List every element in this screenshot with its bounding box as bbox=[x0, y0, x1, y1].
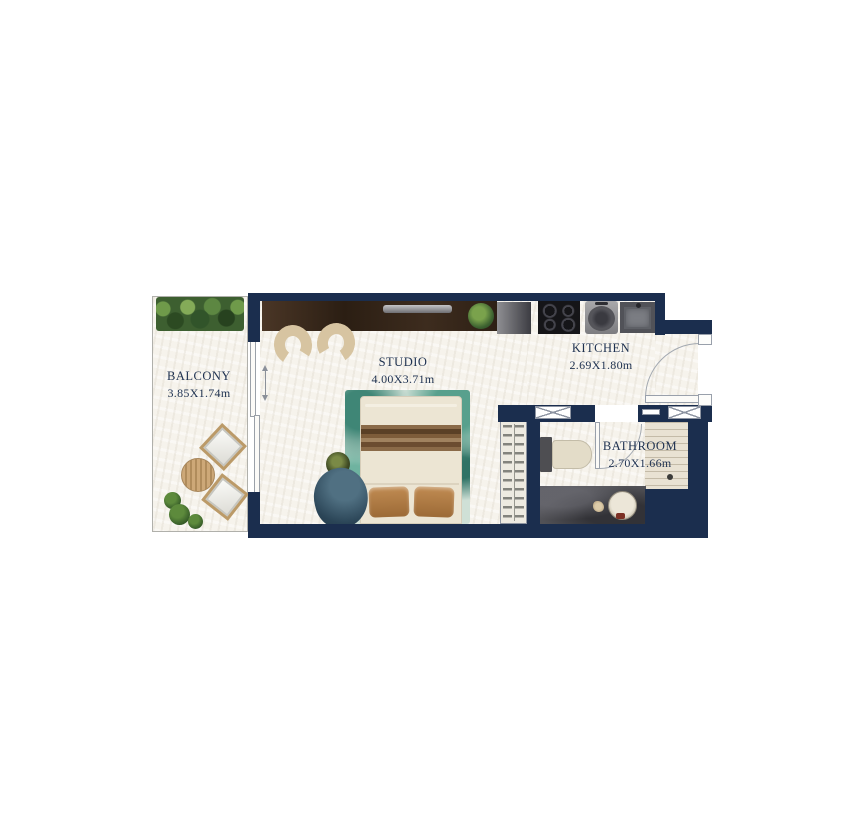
wall-bottom bbox=[248, 524, 708, 538]
cooktop-icon bbox=[538, 301, 580, 334]
hangers-right bbox=[515, 425, 524, 520]
bush-icon bbox=[188, 514, 203, 529]
room-name: BALCONY bbox=[167, 368, 231, 385]
room-dimensions: 4.00X3.71m bbox=[372, 371, 435, 388]
toilet-icon bbox=[552, 440, 592, 469]
wall-vent-symbol-icon bbox=[535, 406, 571, 419]
wall-entry-top bbox=[655, 320, 712, 334]
balcony-label: BALCONY 3.85X1.74m bbox=[167, 368, 231, 402]
fridge-icon bbox=[497, 302, 531, 334]
hangers-left bbox=[503, 425, 512, 520]
plant-icon bbox=[468, 303, 494, 329]
entrance-door-leaf bbox=[645, 395, 702, 403]
wall-vent-symbol-icon bbox=[668, 406, 701, 419]
wardrobe-rail bbox=[514, 424, 515, 521]
room-dimensions: 2.70X1.66m bbox=[603, 455, 677, 472]
bed-duvet-edge bbox=[363, 483, 459, 485]
wall-corner-bottom-right bbox=[645, 489, 708, 524]
bathroom-label: BATHROOM 2.70X1.66m bbox=[603, 438, 677, 472]
bed-fold bbox=[365, 404, 457, 407]
sliding-door-panel bbox=[250, 341, 256, 417]
planter-hedge-icon bbox=[156, 297, 244, 331]
room-name: KITCHEN bbox=[570, 340, 633, 357]
bush-icon bbox=[169, 504, 190, 525]
studio-label: STUDIO 4.00X3.71m bbox=[372, 354, 435, 388]
toilet-tank-icon bbox=[540, 437, 552, 472]
room-name: BATHROOM bbox=[603, 438, 677, 455]
washing-machine-icon bbox=[585, 301, 618, 334]
bed-icon bbox=[360, 396, 462, 524]
shower-drain-icon bbox=[667, 474, 673, 480]
sliding-door-panel bbox=[254, 415, 260, 495]
kitchen-sink-icon bbox=[620, 302, 655, 333]
kitchen-label: KITCHEN 2.69X1.80m bbox=[570, 340, 633, 374]
bed-throw bbox=[361, 425, 461, 451]
decor-shell-icon bbox=[593, 501, 604, 512]
decor-icon bbox=[616, 513, 625, 519]
room-dimensions: 3.85X1.74m bbox=[167, 385, 231, 402]
room-name: STUDIO bbox=[372, 354, 435, 371]
room-dimensions: 2.69X1.80m bbox=[570, 357, 633, 374]
door-jamb bbox=[698, 334, 712, 345]
door-jamb bbox=[698, 394, 712, 406]
round-table-icon bbox=[181, 458, 215, 492]
sliding-direction-arrow-icon bbox=[262, 365, 269, 401]
floor-plan: BALCONY 3.85X1.74m STUDIO 4.00X3.71m KIT… bbox=[150, 292, 713, 538]
wall-left-upper bbox=[248, 293, 260, 342]
tv-icon bbox=[383, 305, 452, 313]
wall-niche-icon bbox=[642, 409, 660, 415]
wall-closet-bathroom bbox=[527, 408, 540, 524]
wardrobe-icon bbox=[500, 421, 527, 524]
floor-plan-canvas: BALCONY 3.85X1.74m STUDIO 4.00X3.71m KIT… bbox=[0, 0, 852, 831]
wall-top bbox=[248, 293, 665, 301]
pillow-icon bbox=[368, 486, 409, 517]
pillow-icon bbox=[413, 486, 454, 517]
